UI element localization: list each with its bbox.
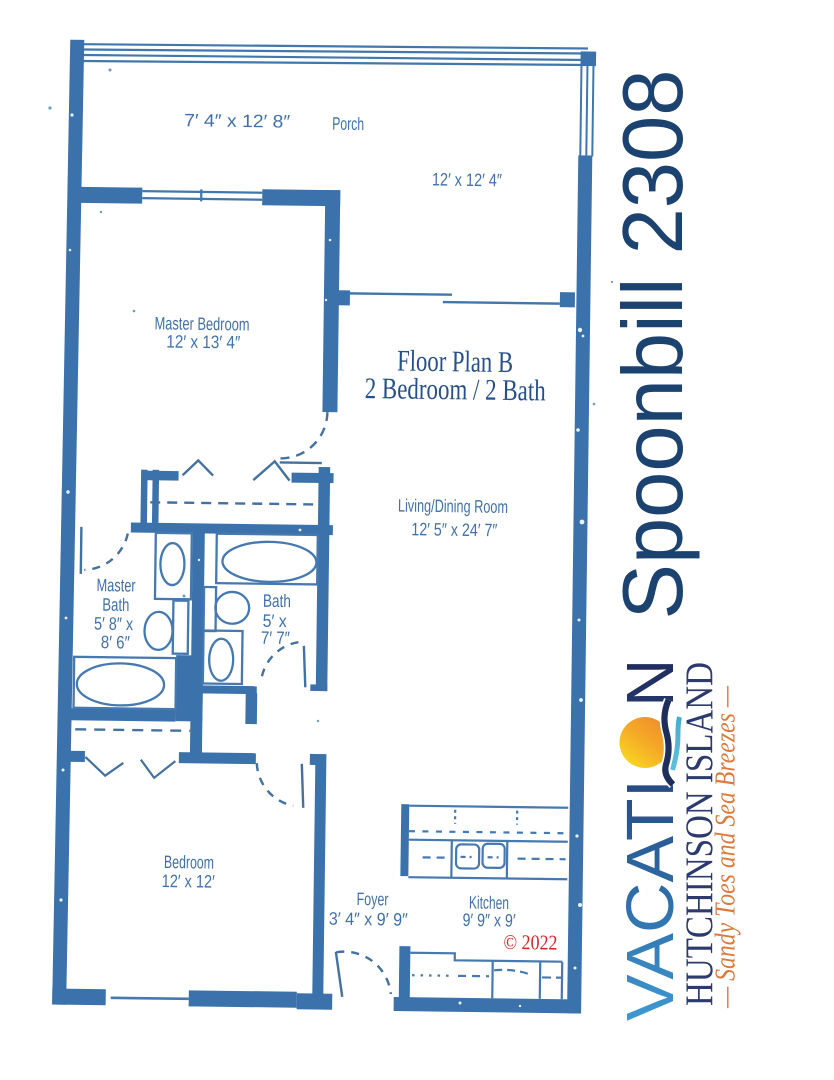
- svg-text:7′ 4″ x 12′ 8″: 7′ 4″ x 12′ 8″: [184, 110, 291, 131]
- svg-text:3′ 4″ x 9′ 9″: 3′ 4″ x 9′ 9″: [329, 909, 409, 930]
- svg-text:8′ 6″: 8′ 6″: [101, 632, 131, 652]
- svg-text:2 Bedroom / 2 Bath: 2 Bedroom / 2 Bath: [365, 372, 546, 407]
- svg-text:Bath: Bath: [263, 591, 291, 611]
- svg-text:Spoonbill 2308: Spoonbill 2308: [606, 70, 701, 620]
- svg-text:Bedroom: Bedroom: [164, 852, 214, 873]
- svg-text:© 2022: © 2022: [503, 930, 557, 955]
- svg-text:5′ 8″ x: 5′ 8″ x: [94, 614, 133, 635]
- svg-text:Porch: Porch: [332, 114, 364, 134]
- svg-text:Bath: Bath: [102, 595, 129, 615]
- svg-text:— Sandy Toes and Sea Breezes —: — Sandy Toes and Sea Breezes —: [711, 685, 742, 1008]
- svg-text:Living/Dining Room: Living/Dining Room: [398, 496, 508, 517]
- svg-text:7′ 7″: 7′ 7″: [261, 628, 291, 648]
- svg-text:12′ x 13′ 4″: 12′ x 13′ 4″: [166, 331, 241, 352]
- svg-text:12′ x 12′: 12′ x 12′: [162, 871, 216, 892]
- svg-text:12′ 5″ x 24′ 7″: 12′ 5″ x 24′ 7″: [411, 519, 498, 540]
- svg-text:Foyer: Foyer: [356, 889, 388, 909]
- svg-text:Master: Master: [96, 575, 135, 596]
- svg-text:12′ x 12′ 4″: 12′ x 12′ 4″: [432, 169, 503, 190]
- svg-text:9′ 9″ x 9′: 9′ 9″ x 9′: [462, 910, 516, 931]
